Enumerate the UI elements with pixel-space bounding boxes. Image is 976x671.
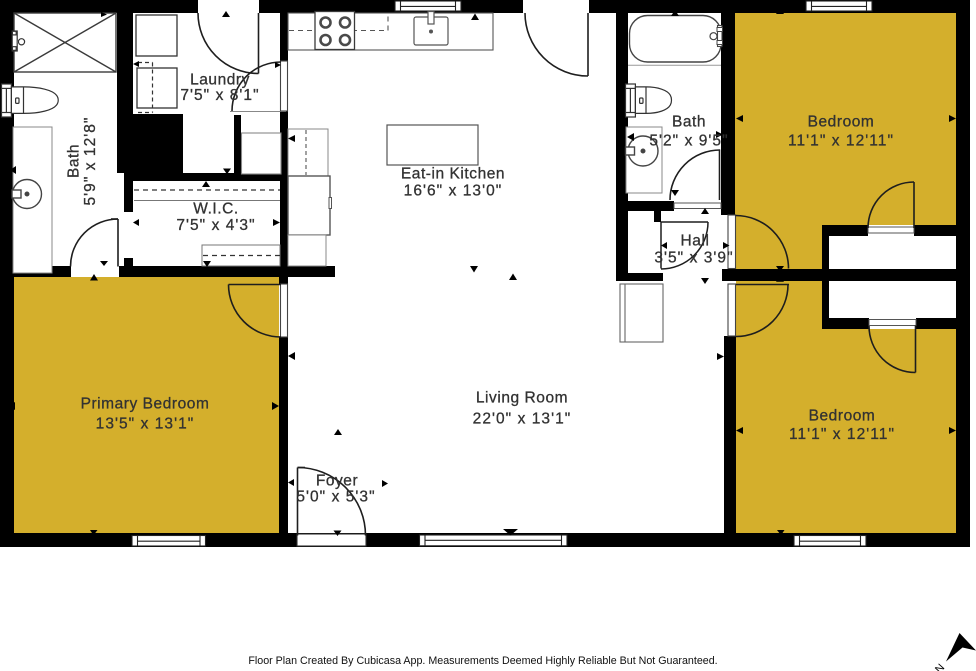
svg-text:Laundry: Laundry [190, 72, 250, 89]
svg-text:Bath: Bath [672, 114, 706, 131]
svg-text:11'1" x 12'11": 11'1" x 12'11" [788, 133, 894, 150]
svg-text:Bath: Bath [65, 144, 82, 178]
svg-text:7'5" x 8'1": 7'5" x 8'1" [180, 87, 259, 104]
svg-text:5'2" x 9'5": 5'2" x 9'5" [649, 133, 728, 150]
svg-text:Bedroom: Bedroom [809, 408, 876, 425]
svg-text:W.I.C.: W.I.C. [193, 201, 239, 218]
svg-text:Bedroom: Bedroom [808, 114, 875, 131]
svg-text:13'5" x 13'1": 13'5" x 13'1" [96, 416, 195, 433]
svg-text:Primary Bedroom: Primary Bedroom [81, 396, 210, 413]
svg-text:Hall: Hall [681, 233, 710, 250]
svg-text:22'0" x 13'1": 22'0" x 13'1" [473, 411, 572, 428]
svg-text:Eat-in Kitchen: Eat-in Kitchen [401, 166, 505, 183]
svg-text:Floor Plan Created By Cubicasa: Floor Plan Created By Cubicasa App. Meas… [248, 655, 717, 667]
svg-text:3'5" x 3'9": 3'5" x 3'9" [654, 250, 733, 267]
svg-text:7'5" x 4'3": 7'5" x 4'3" [176, 217, 255, 234]
svg-text:5'0" x 5'3": 5'0" x 5'3" [296, 489, 375, 506]
svg-text:16'6" x 13'0": 16'6" x 13'0" [404, 183, 503, 200]
svg-text:5'9" x 12'8": 5'9" x 12'8" [82, 117, 99, 206]
svg-text:Living Room: Living Room [476, 390, 568, 407]
svg-text:11'1" x 12'11": 11'1" x 12'11" [789, 426, 895, 443]
svg-text:Foyer: Foyer [316, 473, 358, 490]
